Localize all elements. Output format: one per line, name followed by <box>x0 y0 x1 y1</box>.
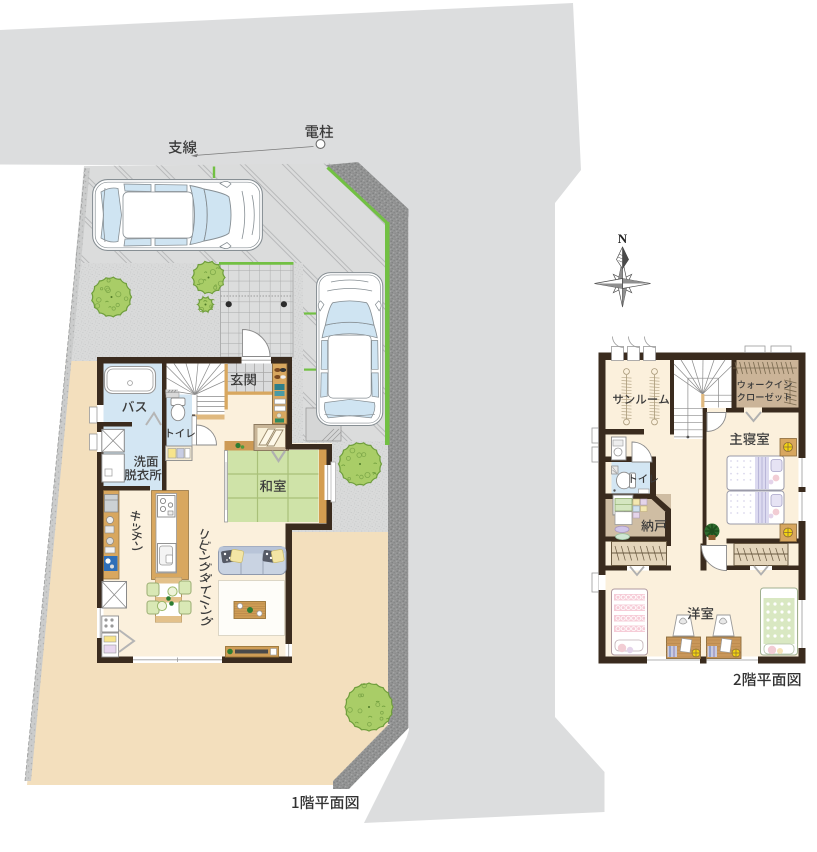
svg-text:N: N <box>618 231 628 246</box>
